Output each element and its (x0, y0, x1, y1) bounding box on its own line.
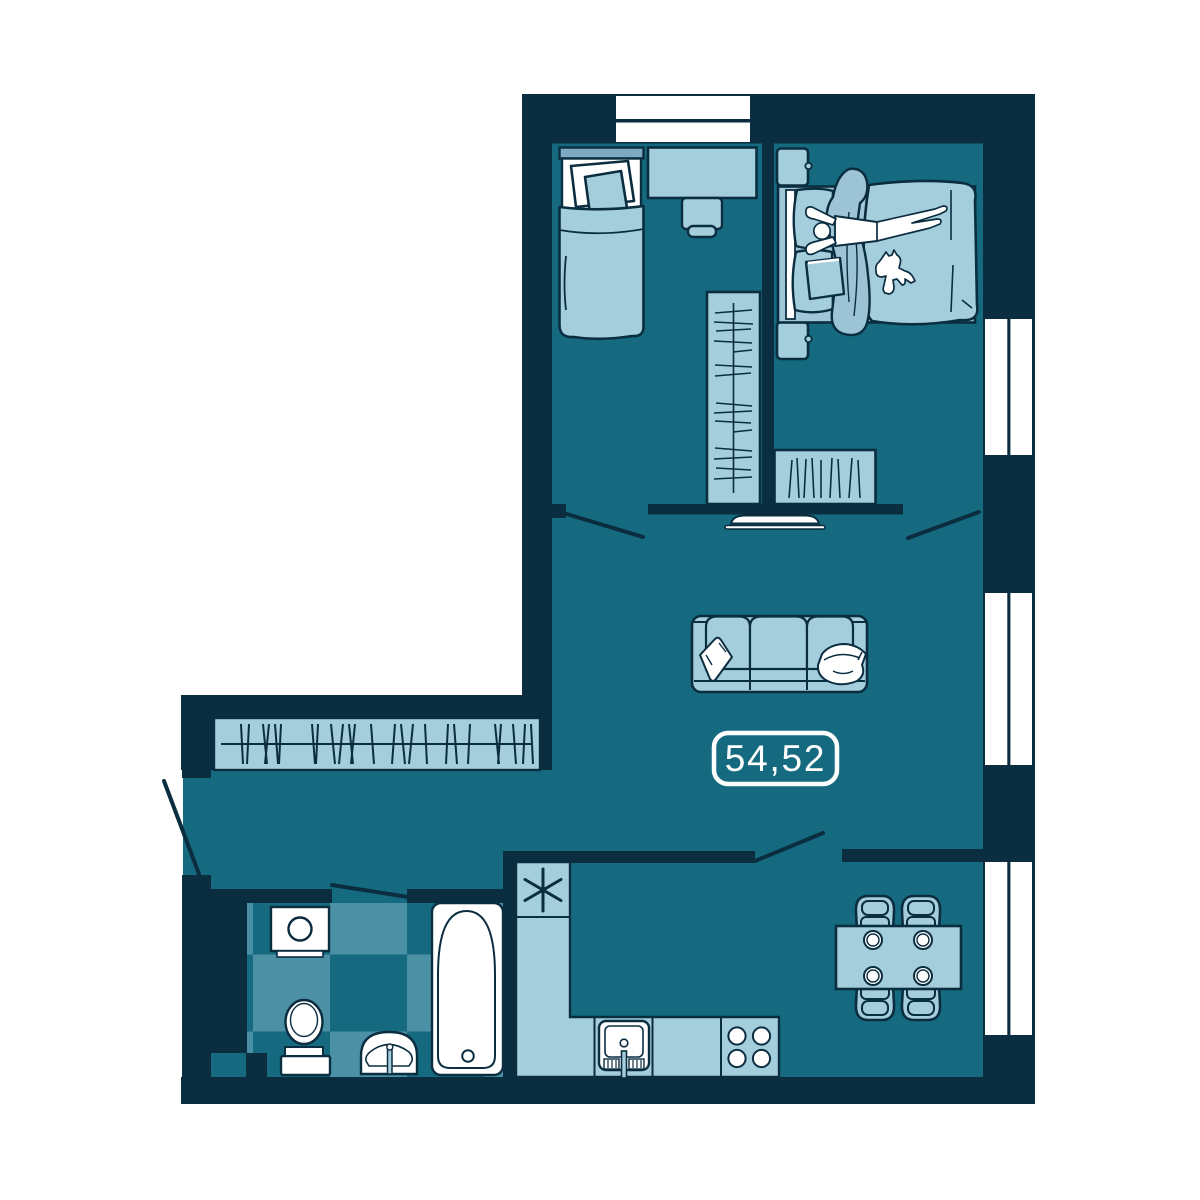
svg-text:54,52: 54,52 (725, 738, 827, 779)
